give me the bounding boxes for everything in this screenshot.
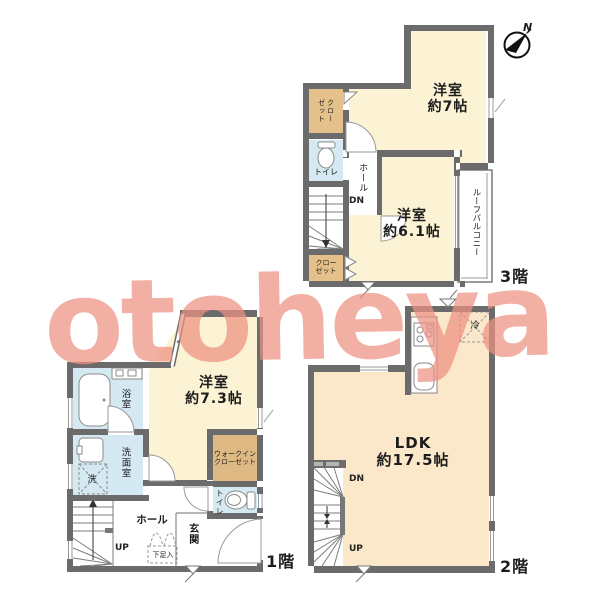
toilet1-icon	[225, 491, 255, 509]
hall3-label: ホール	[357, 163, 367, 193]
ldk-label: LDK約17.5帖	[376, 435, 449, 470]
hall1-label: ホール	[136, 514, 168, 526]
bedroom61-label: 洋室約6.1帖	[383, 208, 441, 240]
stairs-3f	[309, 194, 343, 249]
washroom-label: 洗面室	[119, 447, 130, 479]
stairs3-dn-label: DN	[349, 196, 364, 206]
closet-upper-label: クローゼット	[317, 99, 334, 123]
wic-label: ウォークインクローゼット	[214, 450, 256, 466]
entrance-label: 玄関	[186, 523, 198, 545]
toilet3-label: トイレ	[314, 167, 338, 176]
floorplan-image: 洋室約7帖 洋室約6.1帖 クローゼット トイレ ホール DN クローゼット ル…	[0, 0, 600, 600]
vanity-sink-icon	[77, 438, 103, 462]
floor1-label: 1階	[266, 553, 295, 571]
stairs-1f	[73, 499, 113, 566]
stairs2-dn-label: DN	[349, 474, 364, 484]
toilet1-label: トイレ	[215, 489, 224, 516]
shoe-cabinet-label: 下足入	[153, 551, 174, 559]
stairs2-up-label: UP	[349, 544, 363, 554]
roof-balcony-label: ルーフバルコニー	[470, 188, 480, 256]
stairs2-top-label-bar	[311, 460, 346, 468]
floor2-label: 2階	[500, 558, 529, 576]
north-label: N	[523, 22, 532, 35]
watermark-text: otoheya	[43, 248, 554, 392]
bath-label: 浴室	[119, 389, 130, 410]
toilet3-icon	[318, 142, 335, 168]
bedroom7-label: 洋室約7帖	[428, 83, 469, 115]
stairs1-up-label: UP	[115, 543, 129, 553]
washer-label: 洗	[87, 475, 96, 485]
